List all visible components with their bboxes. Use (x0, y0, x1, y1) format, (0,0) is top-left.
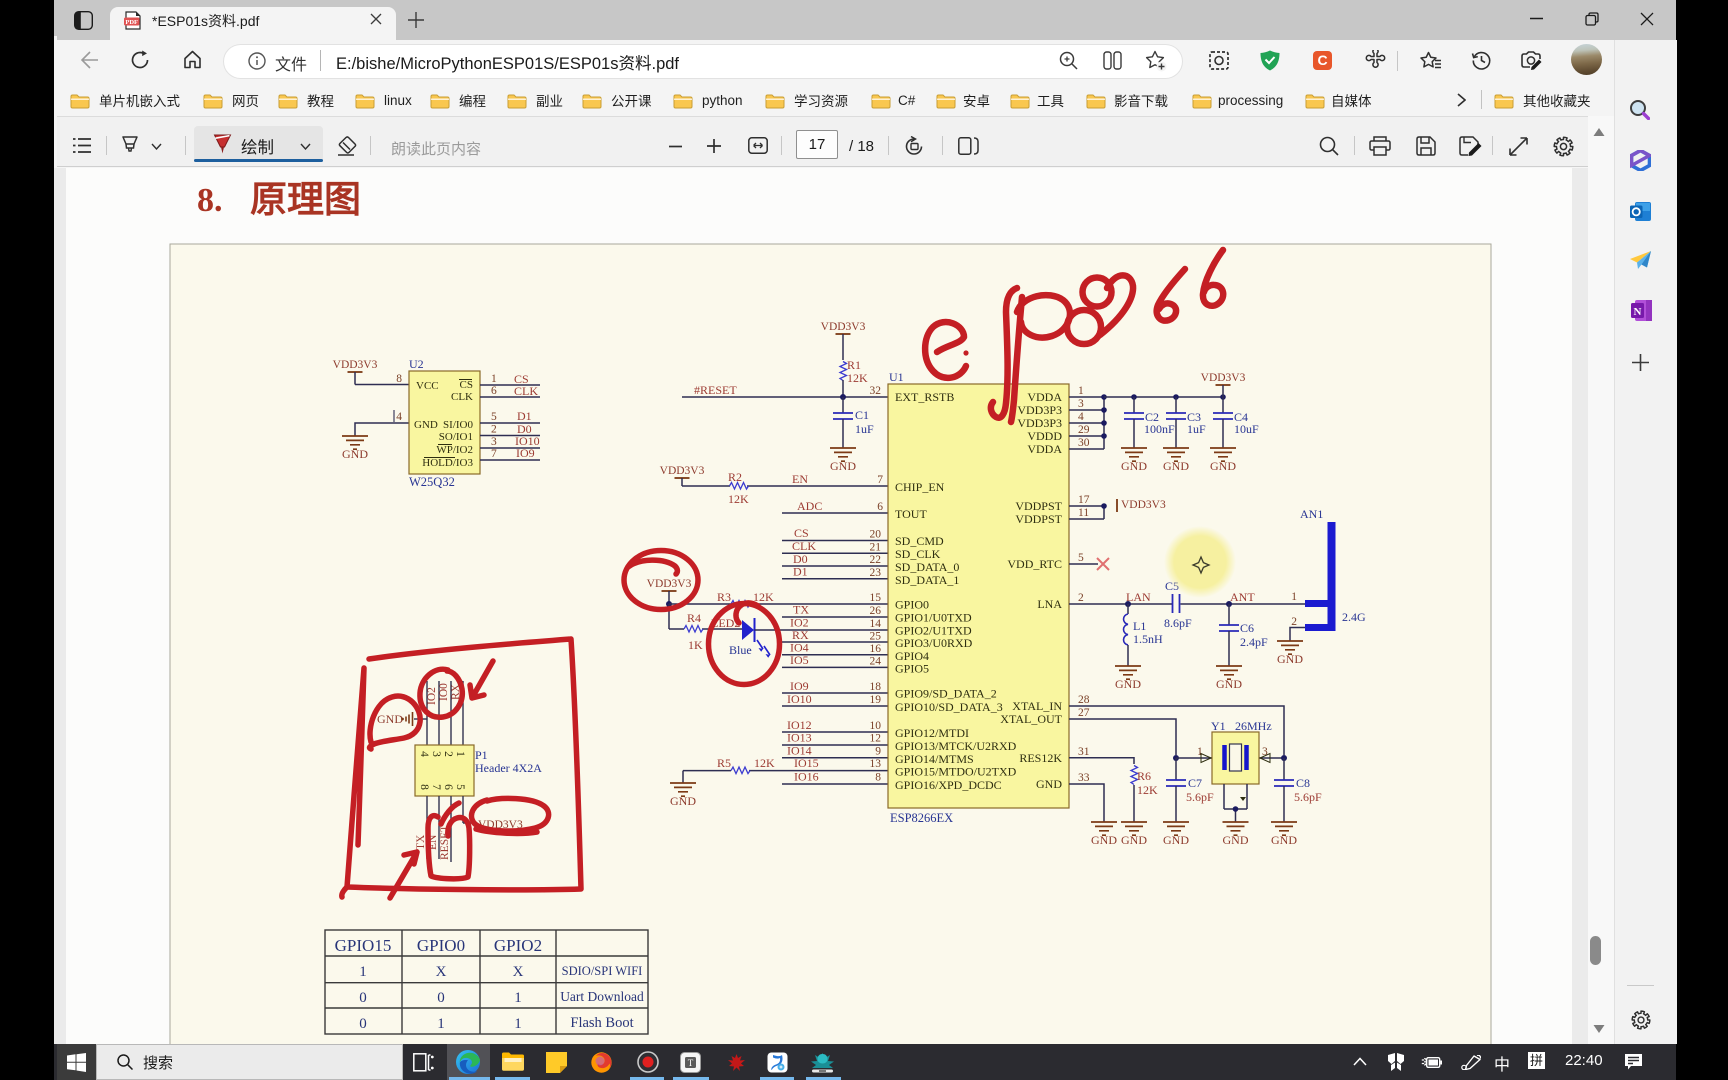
svg-text:1: 1 (437, 1016, 445, 1032)
svg-text:4: 4 (418, 751, 430, 757)
svg-text:AN1: AN1 (1300, 507, 1323, 521)
svg-text:GPIO2: GPIO2 (494, 936, 542, 955)
svg-text:4: 4 (1078, 411, 1084, 423)
svg-text:15: 15 (870, 592, 882, 604)
svg-text:SD_DATA_1: SD_DATA_1 (895, 573, 959, 587)
svg-text:6: 6 (877, 501, 883, 513)
svg-text:EN: EN (792, 472, 808, 486)
svg-text:10uF: 10uF (1234, 422, 1259, 436)
svg-text:ADC: ADC (797, 499, 822, 513)
svg-text:CS: CS (460, 379, 473, 391)
svg-text:100nF: 100nF (1144, 422, 1175, 436)
svg-text:12K: 12K (753, 590, 774, 604)
svg-text:R2: R2 (728, 470, 742, 484)
svg-text:D1: D1 (793, 565, 808, 579)
svg-text:C7: C7 (1188, 776, 1202, 790)
svg-text:17: 17 (1078, 494, 1090, 506)
svg-text:1K: 1K (688, 638, 703, 652)
svg-text:Flash Boot: Flash Boot (570, 1015, 633, 1031)
svg-text:SDIO/SPI WIFI: SDIO/SPI WIFI (562, 964, 643, 978)
svg-text:5: 5 (1078, 552, 1084, 564)
svg-text:1: 1 (514, 1016, 522, 1032)
svg-text:8: 8 (396, 373, 402, 385)
svg-text:27: 27 (1078, 707, 1090, 719)
svg-text:2: 2 (491, 424, 497, 436)
svg-text:14: 14 (870, 618, 882, 630)
svg-text:T: T (688, 1058, 694, 1068)
svg-text:IO0: IO0 (438, 683, 450, 701)
svg-text:1: 1 (514, 990, 522, 1006)
svg-text:12K: 12K (847, 371, 868, 385)
svg-text:LNA: LNA (1037, 597, 1062, 611)
svg-text:0: 0 (437, 990, 445, 1006)
svg-text:GPIO1/U0TXD: GPIO1/U0TXD (895, 611, 972, 625)
svg-text:3: 3 (491, 436, 497, 448)
svg-text:16: 16 (870, 643, 882, 655)
svg-text:25: 25 (870, 630, 882, 642)
svg-text:CLK: CLK (792, 539, 816, 553)
svg-text:SO/IO1: SO/IO1 (439, 431, 473, 443)
svg-text:GPIO15/MTDO/U2TXD: GPIO15/MTDO/U2TXD (895, 765, 1017, 779)
svg-text:原理图: 原理图 (250, 180, 361, 221)
svg-text:12K: 12K (1137, 783, 1158, 797)
svg-text:TX: TX (793, 603, 809, 617)
svg-text:2.4pF: 2.4pF (1240, 635, 1268, 649)
svg-text:IO9: IO9 (790, 679, 809, 693)
svg-text:TOUT: TOUT (895, 507, 927, 521)
svg-text:8.: 8. (197, 182, 223, 219)
svg-text:GND: GND (1036, 777, 1062, 791)
svg-text:U1: U1 (889, 370, 904, 384)
svg-text:IO9: IO9 (516, 446, 535, 460)
svg-text:EXT_RSTB: EXT_RSTB (895, 390, 954, 404)
svg-text:Header 4X2A: Header 4X2A (475, 761, 542, 775)
svg-text:GPIO10/SD_DATA_3: GPIO10/SD_DATA_3 (895, 700, 1003, 714)
svg-text:TX: TX (415, 834, 427, 850)
svg-text:VDDD: VDDD (1027, 429, 1062, 443)
svg-text:7: 7 (430, 784, 442, 790)
svg-text:IO2: IO2 (426, 687, 438, 705)
svg-text:CS: CS (794, 526, 809, 540)
svg-text:XTAL_IN: XTAL_IN (1012, 699, 1062, 713)
svg-text:W25Q32: W25Q32 (409, 475, 455, 489)
svg-text:CLK: CLK (451, 391, 473, 403)
svg-text:0: 0 (359, 990, 367, 1006)
svg-text:P1: P1 (475, 748, 488, 762)
svg-text:VDD3P3: VDD3P3 (1017, 403, 1062, 417)
svg-text:13: 13 (870, 758, 882, 770)
svg-text:R5: R5 (717, 756, 731, 770)
svg-text:L1: L1 (1133, 619, 1146, 633)
svg-text:1.5nH: 1.5nH (1133, 632, 1163, 646)
svg-text:24: 24 (870, 656, 882, 668)
svg-text:X: X (436, 964, 447, 980)
svg-text:1: 1 (454, 751, 466, 757)
svg-text:VDDPST: VDDPST (1015, 512, 1062, 526)
svg-text:2: 2 (1291, 616, 1297, 628)
svg-text:21: 21 (870, 541, 882, 553)
svg-text:1uF: 1uF (855, 422, 874, 436)
svg-text:3: 3 (1078, 398, 1084, 410)
svg-text:R1: R1 (847, 358, 861, 372)
svg-text:U2: U2 (409, 357, 424, 371)
svg-text:7: 7 (877, 474, 883, 486)
svg-text:5: 5 (491, 411, 497, 423)
svg-text:GPIO5: GPIO5 (895, 661, 929, 675)
svg-text:7: 7 (491, 448, 497, 460)
svg-text:CHIP_EN: CHIP_EN (895, 480, 945, 494)
svg-text:GPIO12/MTDI: GPIO12/MTDI (895, 726, 969, 740)
svg-text:2.4G: 2.4G (1342, 610, 1366, 624)
svg-text:VDD_RTC: VDD_RTC (1007, 557, 1062, 571)
svg-text:ANT: ANT (1230, 590, 1255, 604)
svg-text:22: 22 (870, 554, 882, 566)
svg-text:2: 2 (1078, 592, 1084, 604)
svg-text:GND: GND (414, 419, 438, 431)
svg-text:C8: C8 (1296, 776, 1310, 790)
svg-text:XTAL_OUT: XTAL_OUT (1000, 712, 1062, 726)
svg-text:5: 5 (454, 784, 466, 790)
svg-text:SD_CMD: SD_CMD (895, 534, 944, 548)
svg-text:8: 8 (418, 784, 430, 790)
svg-text:32: 32 (870, 385, 882, 397)
svg-text:GND: GND (377, 712, 403, 726)
svg-text:31: 31 (1078, 746, 1090, 758)
svg-text:10: 10 (870, 720, 882, 732)
svg-text:R3: R3 (717, 590, 731, 604)
svg-text:VDDPST: VDDPST (1015, 499, 1062, 513)
svg-text:IO16: IO16 (794, 770, 819, 784)
svg-text:1: 1 (1078, 385, 1084, 397)
svg-text:GPIO15: GPIO15 (335, 936, 392, 955)
svg-text:#RESET: #RESET (694, 383, 737, 397)
svg-text:1: 1 (359, 964, 367, 980)
svg-text:R4: R4 (687, 611, 701, 625)
svg-text:Uart Download: Uart Download (560, 989, 644, 1004)
svg-text:GPIO9/SD_DATA_2: GPIO9/SD_DATA_2 (895, 687, 997, 701)
svg-text:6: 6 (442, 784, 454, 790)
svg-text:GPIO0: GPIO0 (417, 936, 465, 955)
svg-text:VDDA: VDDA (1027, 390, 1062, 404)
svg-text:12K: 12K (754, 756, 775, 770)
svg-text:LAN: LAN (1126, 590, 1151, 604)
svg-text:GPIO0: GPIO0 (895, 598, 929, 612)
svg-text:8: 8 (875, 772, 881, 784)
svg-text:4: 4 (396, 411, 402, 423)
svg-text:PDF: PDF (125, 19, 138, 26)
svg-text:D1: D1 (517, 409, 532, 423)
svg-text:28: 28 (1078, 694, 1090, 706)
svg-text:GPIO16/XPD_DCDC: GPIO16/XPD_DCDC (895, 778, 1002, 792)
svg-text:30: 30 (1078, 437, 1090, 449)
svg-text:IO10: IO10 (787, 692, 812, 706)
svg-text:12: 12 (870, 733, 882, 745)
svg-text:1: 1 (1197, 746, 1203, 758)
svg-text:1: 1 (1291, 591, 1297, 603)
svg-text:VCC: VCC (416, 380, 439, 392)
svg-text:CLK: CLK (514, 384, 538, 398)
svg-text:HOLD/IO3: HOLD/IO3 (422, 457, 473, 469)
svg-text:IO15: IO15 (794, 756, 819, 770)
svg-text:2: 2 (442, 751, 454, 757)
svg-text:8.6pF: 8.6pF (1164, 616, 1192, 630)
svg-text:Blue: Blue (729, 643, 752, 657)
svg-text:R6: R6 (1137, 769, 1151, 783)
svg-text:26MHz: 26MHz (1235, 719, 1272, 733)
svg-text:5.6pF: 5.6pF (1186, 790, 1214, 804)
svg-text:VDD3P3: VDD3P3 (1017, 416, 1062, 430)
svg-text:26: 26 (870, 605, 882, 617)
svg-text:N: N (1634, 306, 1642, 318)
svg-text:0: 0 (359, 1016, 367, 1032)
svg-text:1: 1 (491, 373, 497, 385)
svg-text:12K: 12K (728, 492, 749, 506)
svg-text:X: X (513, 964, 524, 980)
svg-text:SD_CLK: SD_CLK (895, 547, 941, 561)
svg-text:33: 33 (1078, 772, 1090, 784)
svg-text:3: 3 (430, 751, 442, 757)
svg-text:WP/IO2: WP/IO2 (436, 444, 473, 456)
svg-text:ESP8266EX: ESP8266EX (890, 811, 953, 825)
svg-text:19: 19 (870, 694, 882, 706)
svg-text:SI/IO0: SI/IO0 (443, 419, 473, 431)
svg-text:C6: C6 (1240, 621, 1254, 635)
svg-text:RES12K: RES12K (1019, 751, 1062, 765)
svg-text:9: 9 (875, 745, 881, 757)
svg-text:SD_DATA_0: SD_DATA_0 (895, 560, 959, 574)
svg-text:20: 20 (870, 529, 882, 541)
svg-text:23: 23 (870, 567, 882, 579)
svg-text:IO5: IO5 (790, 653, 809, 667)
svg-text:29: 29 (1078, 424, 1090, 436)
svg-text:5.6pF: 5.6pF (1294, 790, 1322, 804)
svg-text:C1: C1 (855, 408, 869, 422)
svg-text:11: 11 (1078, 507, 1089, 519)
svg-text:18: 18 (870, 681, 882, 693)
svg-text:6: 6 (491, 385, 497, 397)
svg-text:VDDA: VDDA (1027, 442, 1062, 456)
svg-text:Y1: Y1 (1211, 719, 1226, 733)
svg-text:VDD3V3: VDD3V3 (1121, 499, 1166, 511)
svg-text:1uF: 1uF (1187, 422, 1206, 436)
